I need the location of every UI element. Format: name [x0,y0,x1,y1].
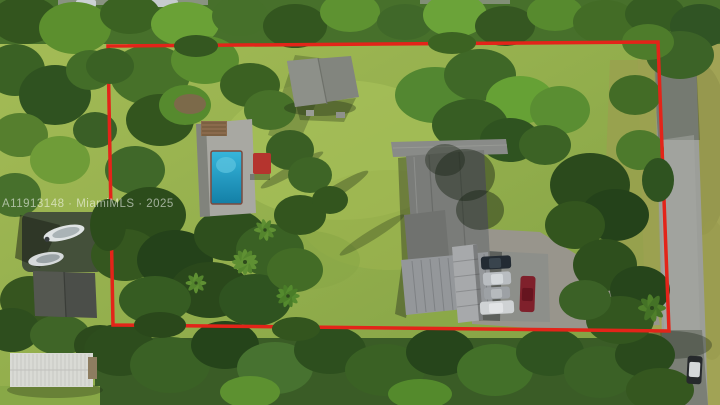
patio-brown-patch [174,94,206,114]
mls-watermark: A11913148 · MiamiMLS · 2025 [2,198,174,210]
road-car [686,356,702,385]
car-white [480,300,515,315]
white-barn [7,353,103,398]
car-red [519,276,535,313]
car-dark [481,255,512,270]
red-canopy [253,153,271,174]
aerial-photo-canvas: A11913148 · MiamiMLS · 2025 [0,0,720,405]
car-silver-1 [483,271,512,285]
car-silver-2 [484,286,511,299]
palm-tree [186,273,207,294]
aerial-property-photo: A11913148 · MiamiMLS · 2025 [0,0,720,405]
top-shed [284,56,359,118]
barn-vent [88,357,97,379]
dark-shed [33,271,97,318]
